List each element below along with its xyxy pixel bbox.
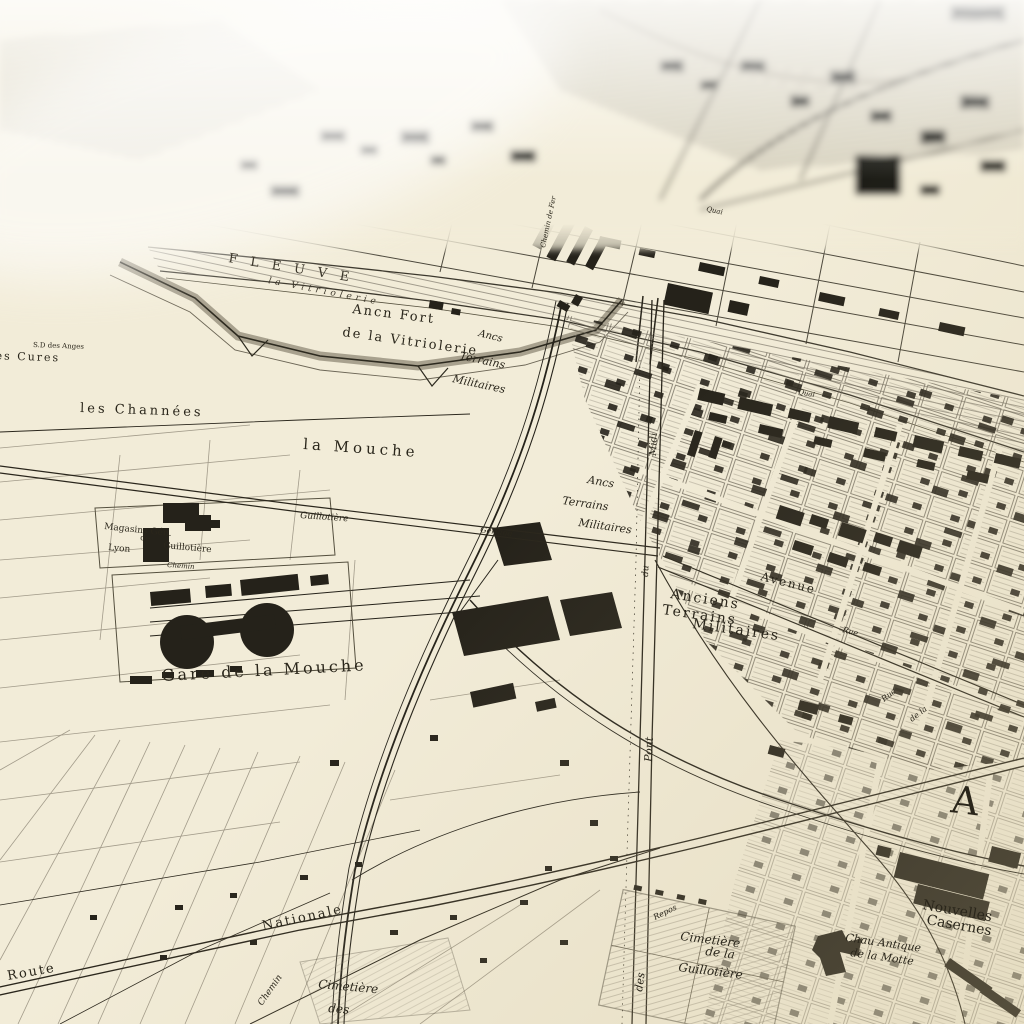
map-canvas: FLEUVE la Vitriolerie Ancn Fort de la Vi…: [0, 0, 1024, 1024]
map-photo: FLEUVE la Vitriolerie Ancn Fort de la Vi…: [0, 0, 1024, 1024]
label-cimetiere-des-2: des: [328, 1001, 350, 1017]
label-midi: Midi: [648, 433, 660, 457]
label-magasins-3: Lyon: [108, 543, 131, 555]
corner-shade: [0, 0, 1024, 1024]
label-district-letter-a: A: [948, 777, 982, 824]
label-pont: Pont: [642, 736, 656, 763]
label-des: des: [632, 971, 648, 992]
label-magasins-2: de: [140, 533, 151, 543]
label-du: du: [641, 565, 651, 577]
label-les-cures: les Cures: [0, 349, 60, 364]
